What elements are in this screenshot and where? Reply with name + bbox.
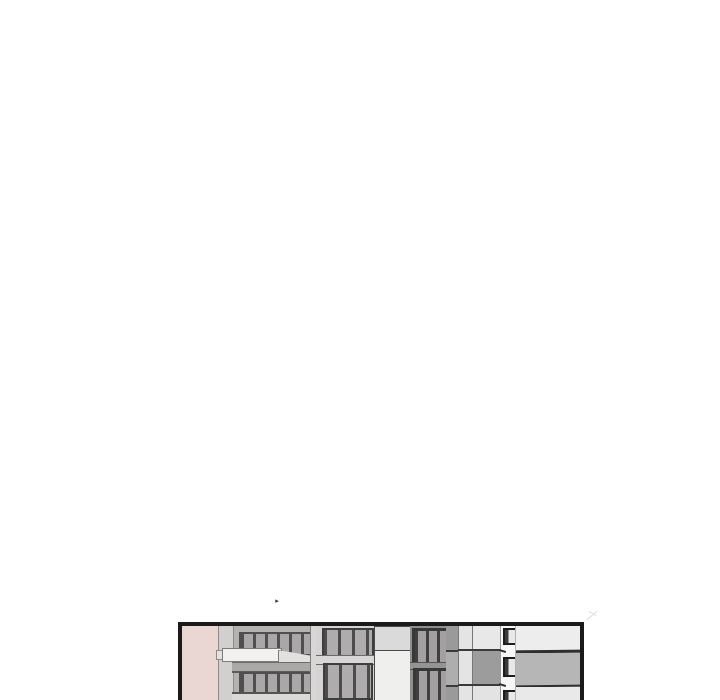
building-a-ledge bbox=[222, 648, 282, 662]
pencil-scribble bbox=[583, 608, 601, 622]
grid-cell-middle bbox=[473, 651, 500, 684]
side-band-bottom bbox=[516, 687, 580, 700]
building-c-edge-line bbox=[446, 685, 458, 687]
corner-step-tick bbox=[499, 649, 506, 653]
building-a-base-band bbox=[232, 692, 315, 700]
building-c-edge-line bbox=[446, 650, 458, 652]
corner-step-tick bbox=[499, 683, 506, 687]
building-a-facade bbox=[218, 626, 315, 700]
grid-row-line bbox=[458, 684, 500, 686]
page: ▸ bbox=[0, 0, 720, 700]
pink-wall bbox=[182, 626, 219, 700]
building-b-lower-window bbox=[323, 663, 373, 700]
light-block-lower-cell bbox=[374, 650, 412, 700]
grid-row-line bbox=[458, 649, 500, 651]
side-band-middle bbox=[516, 653, 580, 685]
grid-cell-bottom bbox=[473, 686, 500, 700]
building-c-edge-strip-mid bbox=[446, 652, 458, 685]
tiny-cursor-mark: ▸ bbox=[275, 597, 279, 604]
grid-cell-top bbox=[473, 626, 500, 649]
side-band-top bbox=[516, 626, 580, 650]
building-b-facade bbox=[316, 626, 374, 700]
light-block-upper-cell bbox=[374, 626, 412, 651]
comic-panel bbox=[178, 622, 584, 700]
